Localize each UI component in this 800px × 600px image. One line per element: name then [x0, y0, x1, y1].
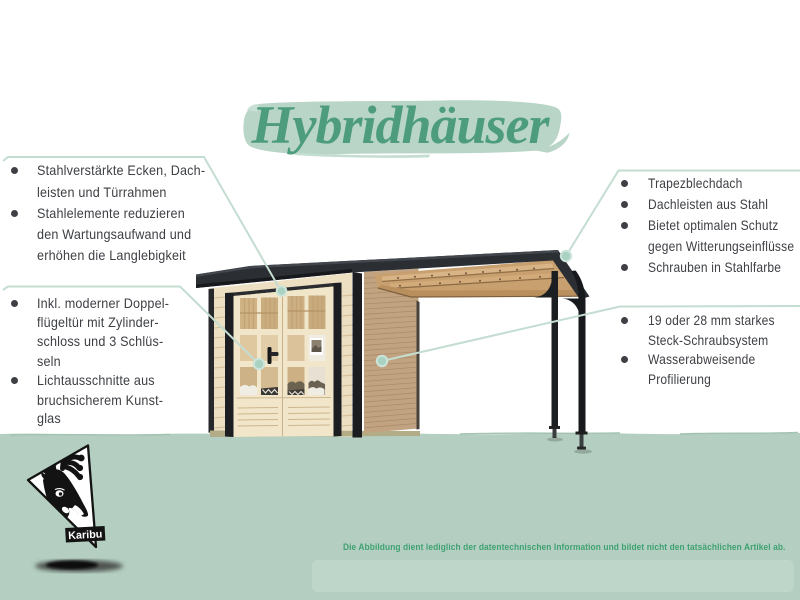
- svg-text:Karibu: Karibu: [68, 528, 103, 542]
